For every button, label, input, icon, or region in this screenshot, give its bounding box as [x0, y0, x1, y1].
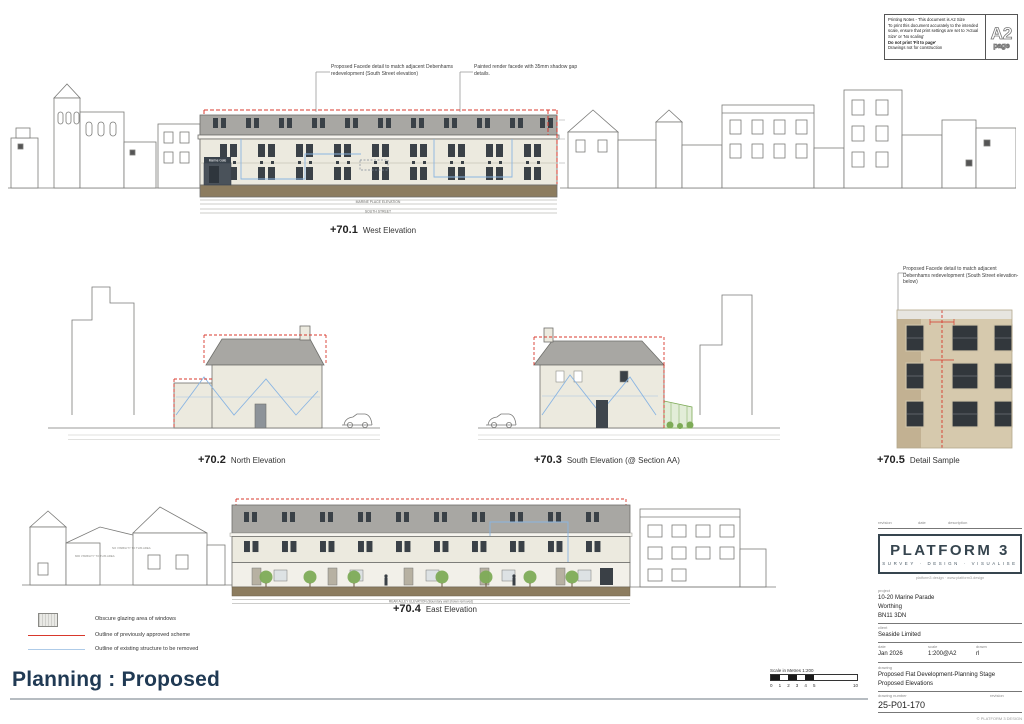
- west-context-right: [560, 90, 1016, 188]
- drawn-label: drawn: [976, 644, 987, 649]
- east-elevation-drawing: MID VISIBILITY TO THIS AREA NO VISIBILIT…: [8, 485, 1016, 605]
- scale-tick: 2: [787, 683, 790, 688]
- client-value: Seaside Limited: [878, 632, 921, 638]
- west-context-left: [8, 84, 203, 188]
- project-line: 10-20 Marine Parade: [878, 595, 934, 601]
- rev-header-date: date: [918, 520, 926, 525]
- scale-label: scale: [928, 644, 937, 649]
- no-visibility-note: NO VISIBILITY TO THIS AREA: [112, 546, 151, 550]
- elevation-name: East Elevation: [426, 605, 477, 614]
- elevation-number: +70.5: [877, 454, 905, 466]
- scale-tick: 1: [779, 683, 782, 688]
- legend-blue-line: [28, 649, 85, 650]
- south-elevation: [478, 295, 780, 440]
- label-south-elevation: +70.3 South Elevation (@ Section AA): [534, 454, 680, 466]
- drawing-title-line: Proposed Elevations: [878, 681, 933, 687]
- client-label: client: [878, 625, 887, 630]
- label-west-elevation: +70.1 West Elevation: [330, 224, 416, 236]
- title-underline: [10, 698, 868, 700]
- project-label: project: [878, 588, 890, 593]
- logo-contact: platform3 design · www.platform3.design: [878, 576, 1022, 580]
- elevation-name: West Elevation: [363, 226, 416, 235]
- legend-item-label: Outline of existing structure to be remo…: [95, 646, 198, 652]
- west-ground-caption: MARINE PLACE ELEVATION: [356, 200, 401, 204]
- scale-tick: 0: [770, 683, 773, 688]
- scale-bar: Scale in Metres 1:200 0 1 2 3 4 5 10: [770, 668, 858, 681]
- annotation-west-facade: Proposed Facede detail to match adjacent…: [331, 64, 459, 77]
- page-size-word: page: [993, 43, 1009, 50]
- legend-item-label: Outline of previously approved scheme: [95, 632, 190, 638]
- leader-line: [316, 72, 330, 112]
- rev-header-description: description: [948, 520, 967, 525]
- printing-notes-line: Drawings not for construction: [888, 45, 982, 51]
- drawing-title-line: Proposed Flat Development-Planning Stage: [878, 672, 995, 678]
- page-size: A2: [991, 25, 1013, 42]
- north-elevation: [48, 287, 380, 440]
- level-ticks: [559, 120, 565, 163]
- west-elevation-drawing: Marine Gate MARINE PLACE ELEVATION SOUTH…: [8, 60, 1016, 215]
- rev-header-revision: revision: [878, 520, 892, 525]
- copyright-note: © PLATFORM 3 DESIGN: [977, 716, 1022, 721]
- date-label: date: [878, 644, 886, 649]
- scale-tick: 3: [796, 683, 799, 688]
- elevation-number: +70.3: [534, 454, 562, 466]
- page-title: Planning : Proposed: [12, 668, 220, 692]
- printing-notes-line: To print this document accurately to the…: [888, 23, 982, 40]
- title-block: revision date description PLATFORM 3 SUR…: [878, 518, 1022, 722]
- logo-tagline: SURVEY · DESIGN · VISUALISE: [882, 561, 1017, 566]
- detail-sample-photo: [897, 310, 1012, 448]
- label-east-elevation: +70.4 East Elevation: [393, 603, 477, 615]
- elevation-number: +70.2: [198, 454, 226, 466]
- east-main-building: [230, 499, 632, 604]
- revision-label: revision: [990, 693, 1004, 698]
- drawing-number-value: 25-P01-170: [878, 700, 925, 710]
- west-street-caption: SOUTH STREET: [365, 209, 391, 213]
- project-line: Worthing: [878, 604, 902, 610]
- elevation-number: +70.4: [393, 603, 421, 615]
- legend-obscure-glazing-swatch: [38, 613, 58, 627]
- logo-name: PLATFORM 3: [890, 542, 1010, 559]
- annotation-detail-sample: Proposed Facede detail to match adjacent…: [903, 266, 1024, 286]
- date-value: Jan 2026: [878, 651, 903, 657]
- drawing-number-label: drawing number: [878, 693, 907, 698]
- scale-value: 1:200@A2: [928, 651, 956, 657]
- mid-visibility-note: MID VISIBILITY TO THIS AREA: [75, 554, 115, 558]
- project-line: BN11 3DN: [878, 613, 906, 619]
- east-context-right: [630, 509, 776, 587]
- annotation-west-render: Painted render facede with 35mm shadow g…: [474, 64, 586, 77]
- elevation-name: North Elevation: [231, 456, 286, 465]
- printing-notes-text: Printing Notes - This document is A2 Siz…: [885, 15, 986, 59]
- leader-line: [460, 72, 473, 112]
- printing-notes-box: Printing Notes - This document is A2 Siz…: [884, 14, 1018, 60]
- legend-item-label: Obscure glazing area of windows: [95, 616, 176, 622]
- label-detail-sample: +70.5 Detail Sample: [877, 454, 960, 466]
- north-south-detail-drawing: [8, 265, 1016, 455]
- elevation-name: South Elevation (@ Section AA): [567, 456, 680, 465]
- marine-gate-sign: Marine Gate: [209, 158, 227, 162]
- drawn-value: rl: [976, 651, 979, 657]
- scale-tick: 4: [804, 683, 807, 688]
- page-size-cell: A2 page: [986, 15, 1017, 59]
- platform3-logo: PLATFORM 3 SURVEY · DESIGN · VISUALISE: [878, 534, 1022, 574]
- scale-bar-label: Scale in Metres 1:200: [770, 668, 858, 673]
- elevation-name: Detail Sample: [910, 456, 960, 465]
- scale-tick: 10: [853, 683, 858, 688]
- label-north-elevation: +70.2 North Elevation: [198, 454, 286, 466]
- legend-red-line: [28, 635, 85, 636]
- scale-bar-graphic: 0 1 2 3 4 5 10: [770, 674, 858, 681]
- scale-tick: 5: [813, 683, 816, 688]
- elevation-number: +70.1: [330, 224, 358, 236]
- drawing-sheet: Marine Gate MARINE PLACE ELEVATION SOUTH…: [0, 0, 1024, 724]
- drawing-label: drawing: [878, 665, 892, 670]
